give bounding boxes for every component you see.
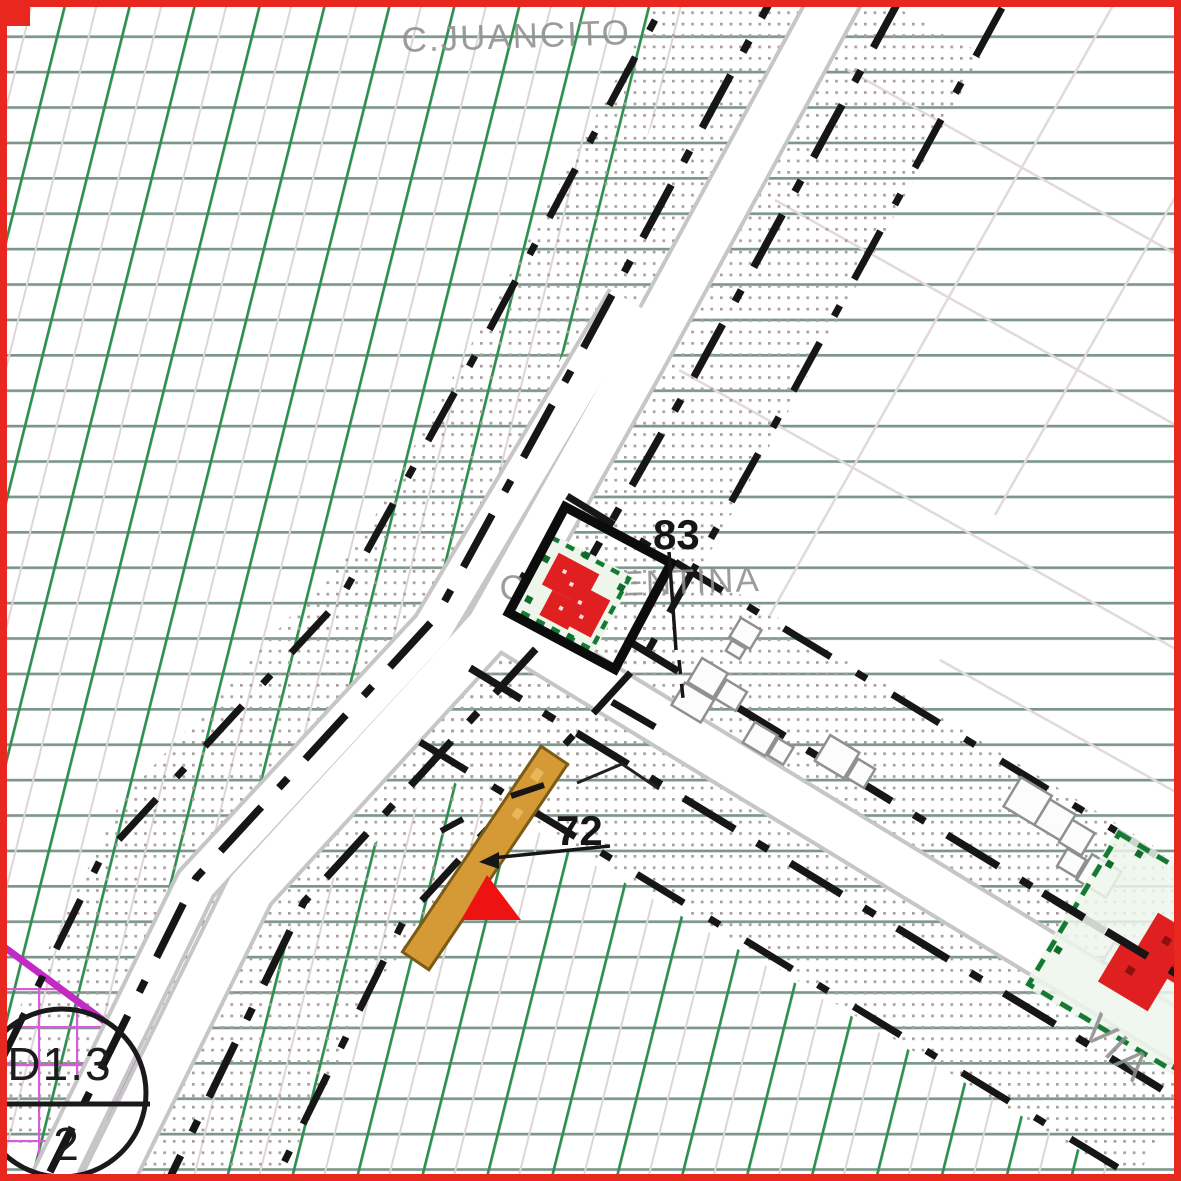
- zone-badge-code: D1.3: [7, 1038, 112, 1090]
- zoning-map: C.JUANCITO C.ARGENTINA: [0, 0, 1181, 1181]
- parcel-72-label: 72: [556, 807, 603, 854]
- frame-corner-mark: [0, 0, 30, 26]
- zone-badge-number: 2: [53, 1118, 79, 1170]
- street-label-juancito: C.JUANCITO: [401, 13, 632, 60]
- parcel-83-label: 83: [653, 511, 700, 558]
- map-canvas[interactable]: C.JUANCITO C.ARGENTINA: [0, 0, 1181, 1181]
